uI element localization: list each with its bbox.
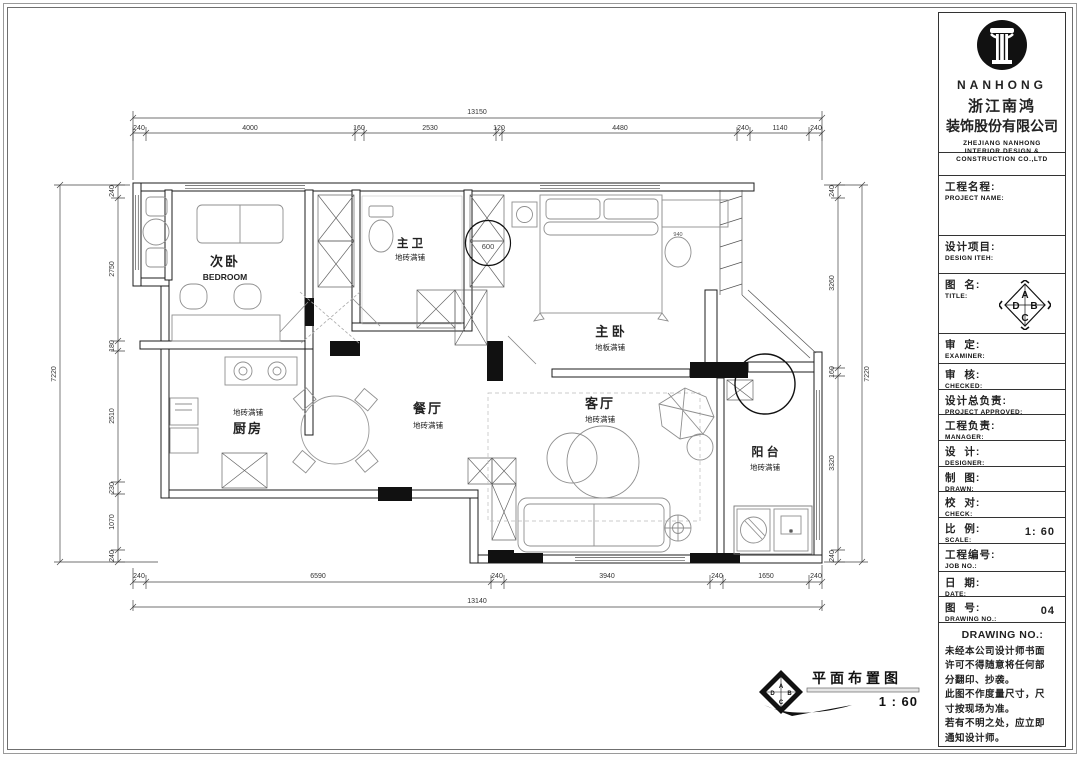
room-label-kitchen: 地砖满铺 厨房: [233, 407, 264, 436]
field-drawn: 制 图: DRAWN:: [939, 467, 1065, 492]
title-block: NANHONG 浙江南鸿 装饰股份有限公司 ZHEJIANG NANHONG I…: [938, 12, 1066, 747]
field-project-name: 工程名程: PROJECT NAME:: [939, 176, 1065, 236]
svg-text:1650: 1650: [758, 573, 774, 580]
svg-text:240: 240: [711, 573, 723, 580]
field-designer: 设 计: DESIGNER:: [939, 441, 1065, 467]
svg-text:230: 230: [109, 482, 116, 494]
svg-text:阳 台: 阳 台: [751, 444, 778, 459]
caption-title: 平面布置图: [812, 670, 902, 686]
svg-text:240: 240: [829, 550, 836, 562]
svg-text:地砖满铺: 地砖满铺: [395, 252, 425, 262]
annotation-600: 600: [482, 242, 495, 251]
caption-scale: 1 : 60: [879, 694, 918, 709]
svg-text:240: 240: [829, 185, 836, 197]
company-logo-block: NANHONG 浙江南鸿 装饰股份有限公司 ZHEJIANG NANHONG I…: [939, 13, 1065, 153]
copyright-note: DRAWING NO.: 未经本公司设计师书面 许可不得随意将任何部 分翻印、抄…: [939, 623, 1065, 747]
room-label-dining: 餐厅 地砖满铺: [412, 401, 444, 430]
field-manager: 工程负责: MANAGER:: [939, 415, 1065, 441]
field-project-approved: 设计总负责: PROJECT APPROVED:: [939, 390, 1065, 415]
svg-text:A: A: [1021, 290, 1028, 301]
field-job-no: 工程编号: JOB NO.:: [939, 544, 1065, 572]
room-label-bedroom2: 次卧 BEDROOM: [203, 254, 247, 282]
svg-text:3320: 3320: [829, 455, 836, 471]
drawing-no-value: 04: [1041, 605, 1055, 617]
floor-plan: 13150 240 4000 160 2530 120 4480 240 114…: [0, 0, 930, 757]
room-label-master-bath: 主 卫 地砖满铺: [395, 236, 425, 262]
svg-text:地板满铺: 地板满铺: [595, 342, 625, 352]
svg-text:3260: 3260: [829, 275, 836, 291]
svg-text:A: A: [779, 684, 784, 690]
company-name-cn-2: 装饰股份有限公司: [939, 116, 1065, 136]
company-sub-en-1: ZHEJIANG NANHONG: [939, 140, 1065, 148]
titleblock-empty-row: [939, 153, 1065, 176]
svg-text:厨房: 厨房: [233, 421, 263, 436]
svg-text:240: 240: [810, 125, 822, 132]
svg-text:240: 240: [737, 125, 749, 132]
svg-text:2530: 2530: [422, 125, 438, 132]
svg-text:4000: 4000: [242, 125, 258, 132]
field-design-item: 设计项目: DESIGN ITEH:: [939, 236, 1065, 274]
room-label-balcony: 阳 台 地砖满铺: [750, 444, 780, 472]
svg-text:240: 240: [133, 573, 145, 580]
nanhong-logo-icon: [976, 19, 1028, 71]
dim-top-overall: 13150: [467, 109, 487, 116]
field-checked: 审 核: CHECKED:: [939, 364, 1065, 390]
svg-text:C: C: [1021, 313, 1028, 324]
dim-bottom-overall: 13140: [467, 598, 487, 605]
svg-text:地砖满铺: 地砖满铺: [750, 462, 780, 472]
svg-text:2750: 2750: [109, 261, 116, 277]
svg-text:2510: 2510: [109, 408, 116, 424]
svg-text:地砖满铺: 地砖满铺: [585, 414, 615, 424]
room-label-master-bedroom: 主 卧 地板满铺: [595, 324, 625, 352]
svg-text:BEDROOM: BEDROOM: [203, 272, 247, 282]
svg-text:D: D: [1012, 301, 1019, 312]
svg-text:1140: 1140: [772, 125, 787, 132]
field-date: 日 期: DATE:: [939, 572, 1065, 597]
field-scale: 比 例: SCALE: 1: 60: [939, 518, 1065, 544]
detail-callouts: [466, 221, 796, 415]
svg-text:240: 240: [109, 185, 116, 197]
svg-text:C: C: [779, 700, 784, 706]
svg-text:地砖满铺: 地砖满铺: [413, 420, 443, 430]
drawing-sheet: 13150 240 4000 160 2530 120 4480 240 114…: [0, 0, 1080, 757]
svg-text:客厅: 客厅: [585, 396, 615, 411]
svg-text:120: 120: [493, 125, 505, 132]
svg-text:160: 160: [829, 366, 836, 378]
field-drawing-no: 图 号: DRAWING NO.: 04: [939, 597, 1065, 623]
field-title: 图 名: TITLE: A B C D: [939, 274, 1065, 334]
titleblock-compass-icon: A B C D: [999, 280, 1051, 335]
svg-text:160: 160: [353, 125, 365, 132]
svg-text:D: D: [770, 691, 775, 697]
svg-text:主 卧: 主 卧: [595, 324, 625, 339]
field-examiner: 审 定: EXAMINER:: [939, 334, 1065, 364]
svg-text:180: 180: [109, 340, 116, 352]
svg-text:240: 240: [491, 573, 503, 580]
svg-text:主 卫: 主 卫: [397, 236, 424, 250]
annotation-940: 940: [673, 232, 682, 238]
field-check: 校 对: CHECK:: [939, 492, 1065, 518]
svg-text:240: 240: [810, 573, 822, 580]
svg-text:餐厅: 餐厅: [412, 401, 443, 416]
dim-left-overall: 7220: [51, 366, 58, 382]
svg-text:240: 240: [133, 125, 145, 132]
dim-right-overall: 7220: [864, 366, 871, 382]
plan-caption: A B C D 平面布置图 1 : 60: [759, 670, 919, 716]
svg-text:地砖满铺: 地砖满铺: [233, 407, 263, 417]
svg-text:次卧: 次卧: [210, 254, 240, 269]
scale-value: 1: 60: [1025, 526, 1055, 538]
room-label-living: 客厅 地砖满铺: [585, 396, 616, 424]
svg-text:240: 240: [109, 550, 116, 562]
svg-text:B: B: [787, 691, 792, 697]
svg-text:B: B: [1030, 301, 1037, 312]
note-header: DRAWING NO.:: [945, 629, 1060, 641]
company-name-en: NANHONG: [939, 78, 1065, 92]
svg-text:1070: 1070: [109, 514, 116, 530]
svg-text:6590: 6590: [310, 573, 326, 580]
svg-text:3940: 3940: [599, 573, 615, 580]
company-name-cn-1: 浙江南鸿: [939, 95, 1065, 116]
svg-text:4480: 4480: [612, 125, 628, 132]
